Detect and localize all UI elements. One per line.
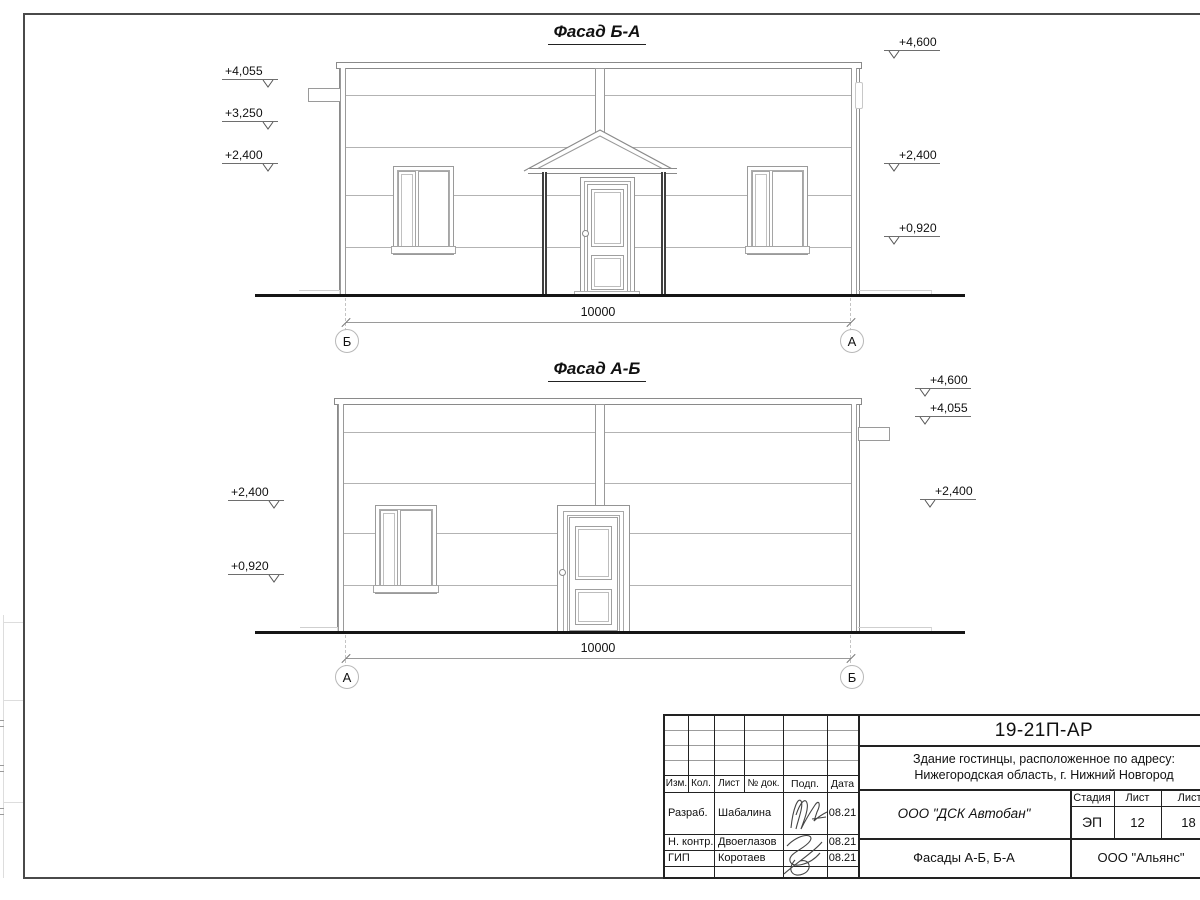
project-address: Здание гостинцы, расположенное по адресу…: [858, 745, 1200, 789]
col-header-list: Лист: [714, 775, 744, 792]
extension-line: [345, 298, 346, 331]
door-panel-top: [575, 526, 612, 580]
axis-letter: А: [848, 334, 857, 349]
margin-divider: [3, 802, 23, 803]
elevation-arrow-icon: [261, 121, 275, 130]
signer-date: 08.21: [827, 792, 858, 834]
col-header-izm: Изм.: [665, 775, 688, 792]
contractor-name: ООО "Альянс": [1070, 838, 1200, 877]
col-header-doc: № док.: [744, 775, 783, 792]
door-leaf: [587, 184, 628, 295]
elevation-mark: +2,400: [884, 148, 940, 164]
axis-bubble: А: [335, 665, 359, 689]
entrance-door: [580, 177, 635, 297]
signer-role: Н. контр.: [667, 834, 714, 850]
elevation-mark: +4,055: [915, 401, 971, 417]
table-line: [665, 730, 858, 731]
elevation-arrow-icon: [261, 79, 275, 88]
door-panel-top: [591, 189, 624, 247]
elevation-arrow-icon: [267, 574, 281, 583]
elevation-arrow-icon: [918, 388, 932, 397]
elevation-arrow-icon: [923, 499, 937, 508]
signer-name: Шабалина: [718, 792, 783, 834]
signature-icon: [779, 830, 833, 878]
margin-column-line: [3, 615, 4, 878]
elevation-mark: +2,400: [920, 484, 976, 500]
margin-mark: [0, 765, 4, 766]
elevation-mark: +4,600: [884, 35, 940, 51]
window: [747, 166, 808, 255]
dimension-value: 10000: [558, 641, 638, 655]
door-panel-bottom: [575, 589, 612, 625]
window: [393, 166, 454, 255]
window-casement: [752, 171, 770, 250]
vent-pipe: [595, 404, 605, 507]
elevation-arrow-icon: [267, 500, 281, 509]
sheets-total: 18: [1161, 806, 1200, 838]
axis-bubble: Б: [840, 665, 864, 689]
dimension-line: [346, 658, 851, 659]
elevation-arrow-icon: [918, 416, 932, 425]
vent-pipe: [595, 68, 605, 133]
sheet-header: Лист: [1114, 789, 1161, 806]
axis-letter: Б: [848, 670, 857, 685]
window: [375, 505, 437, 594]
drawing-sheet: Фасад Б-А: [0, 0, 1200, 900]
axis-letter: А: [343, 670, 352, 685]
frame-left-border: [23, 13, 25, 879]
ground-line: [255, 631, 965, 634]
window-pane: [772, 171, 803, 250]
door-knob: [582, 230, 589, 237]
corner-board: [851, 404, 857, 632]
margin-divider: [3, 622, 23, 623]
window-casement: [380, 510, 398, 589]
facade1-title: Фасад Б-А: [497, 22, 697, 45]
margin-mark: [0, 720, 4, 721]
margin-mark: [0, 726, 4, 727]
axis-letter: Б: [343, 334, 352, 349]
sheets-header: Листов: [1161, 789, 1200, 806]
company-name: ООО "ДСК Автобан": [858, 789, 1070, 838]
col-header-kol: Кол.: [688, 775, 714, 792]
margin-mark: [0, 771, 4, 772]
window-sill: [373, 585, 439, 593]
col-header-data: Дата: [827, 775, 858, 792]
address-line2: Нижегородская область, г. Нижний Новгоро…: [914, 767, 1173, 783]
ground-line: [255, 294, 965, 297]
porch-eave: [528, 168, 677, 174]
margin-divider: [3, 700, 23, 701]
margin-mark: [0, 814, 4, 815]
elevation-arrow-icon: [887, 50, 901, 59]
corner-board: [340, 68, 346, 296]
elevation-mark: +0,920: [884, 221, 940, 237]
margin-mark: [0, 808, 4, 809]
elevation-mark: +3,250: [222, 106, 278, 122]
window-sill: [745, 246, 810, 254]
extension-line: [345, 635, 346, 668]
facade2-title: Фасад А-Б: [497, 359, 697, 382]
window-sill: [391, 246, 456, 254]
frame-top-border: [23, 13, 1200, 15]
wall-outlet-right: [858, 427, 890, 441]
door-knob: [559, 569, 566, 576]
elevation-mark: +4,600: [915, 373, 971, 389]
wall-outlet-left: [308, 88, 341, 102]
address-line1: Здание гостинцы, расположенное по адресу…: [913, 751, 1175, 767]
stage-header: Стадия: [1070, 789, 1114, 806]
elevation-arrow-icon: [887, 163, 901, 172]
downpipe-bracket: [855, 82, 863, 109]
elevation-mark: +2,400: [222, 148, 278, 164]
window-pane: [418, 171, 449, 250]
signer-role: Разраб.: [667, 792, 714, 834]
porch-post: [542, 172, 547, 294]
doc-number: 19-21П-АР: [858, 716, 1200, 745]
table-line: [665, 745, 858, 746]
rear-door: [557, 505, 630, 634]
extension-line: [850, 298, 851, 331]
window-pane: [400, 510, 432, 589]
signer-name: Коротаев: [718, 850, 783, 866]
porch-post: [661, 172, 666, 294]
col-header-podp: Подп.: [783, 775, 827, 792]
dimension-line: [346, 322, 851, 323]
sheet-number: 12: [1114, 806, 1161, 838]
axis-bubble: Б: [335, 329, 359, 353]
signer-name: Двоеглазов: [718, 834, 783, 850]
dimension-value: 10000: [558, 305, 638, 319]
door-panel-bottom: [591, 255, 624, 290]
sheet-title: Фасады А-Б, Б-А: [858, 838, 1070, 877]
corner-board: [338, 404, 344, 632]
elevation-arrow-icon: [261, 163, 275, 172]
title-block: Изм. Кол. Лист № док. Подп. Дата Разраб.…: [663, 714, 1200, 879]
elevation-mark: +0,920: [228, 559, 284, 575]
stage-value: ЭП: [1070, 806, 1114, 838]
elevation-arrow-icon: [887, 236, 901, 245]
table-line: [665, 760, 858, 761]
elevation-mark: +4,055: [222, 64, 278, 80]
signer-role: ГИП: [667, 850, 714, 866]
extension-line: [850, 635, 851, 668]
door-leaf: [569, 517, 618, 631]
elevation-mark: +2,400: [228, 485, 284, 501]
porch-roof: [522, 128, 678, 173]
table-line: [714, 716, 715, 877]
axis-bubble: А: [840, 329, 864, 353]
window-casement: [398, 171, 416, 250]
